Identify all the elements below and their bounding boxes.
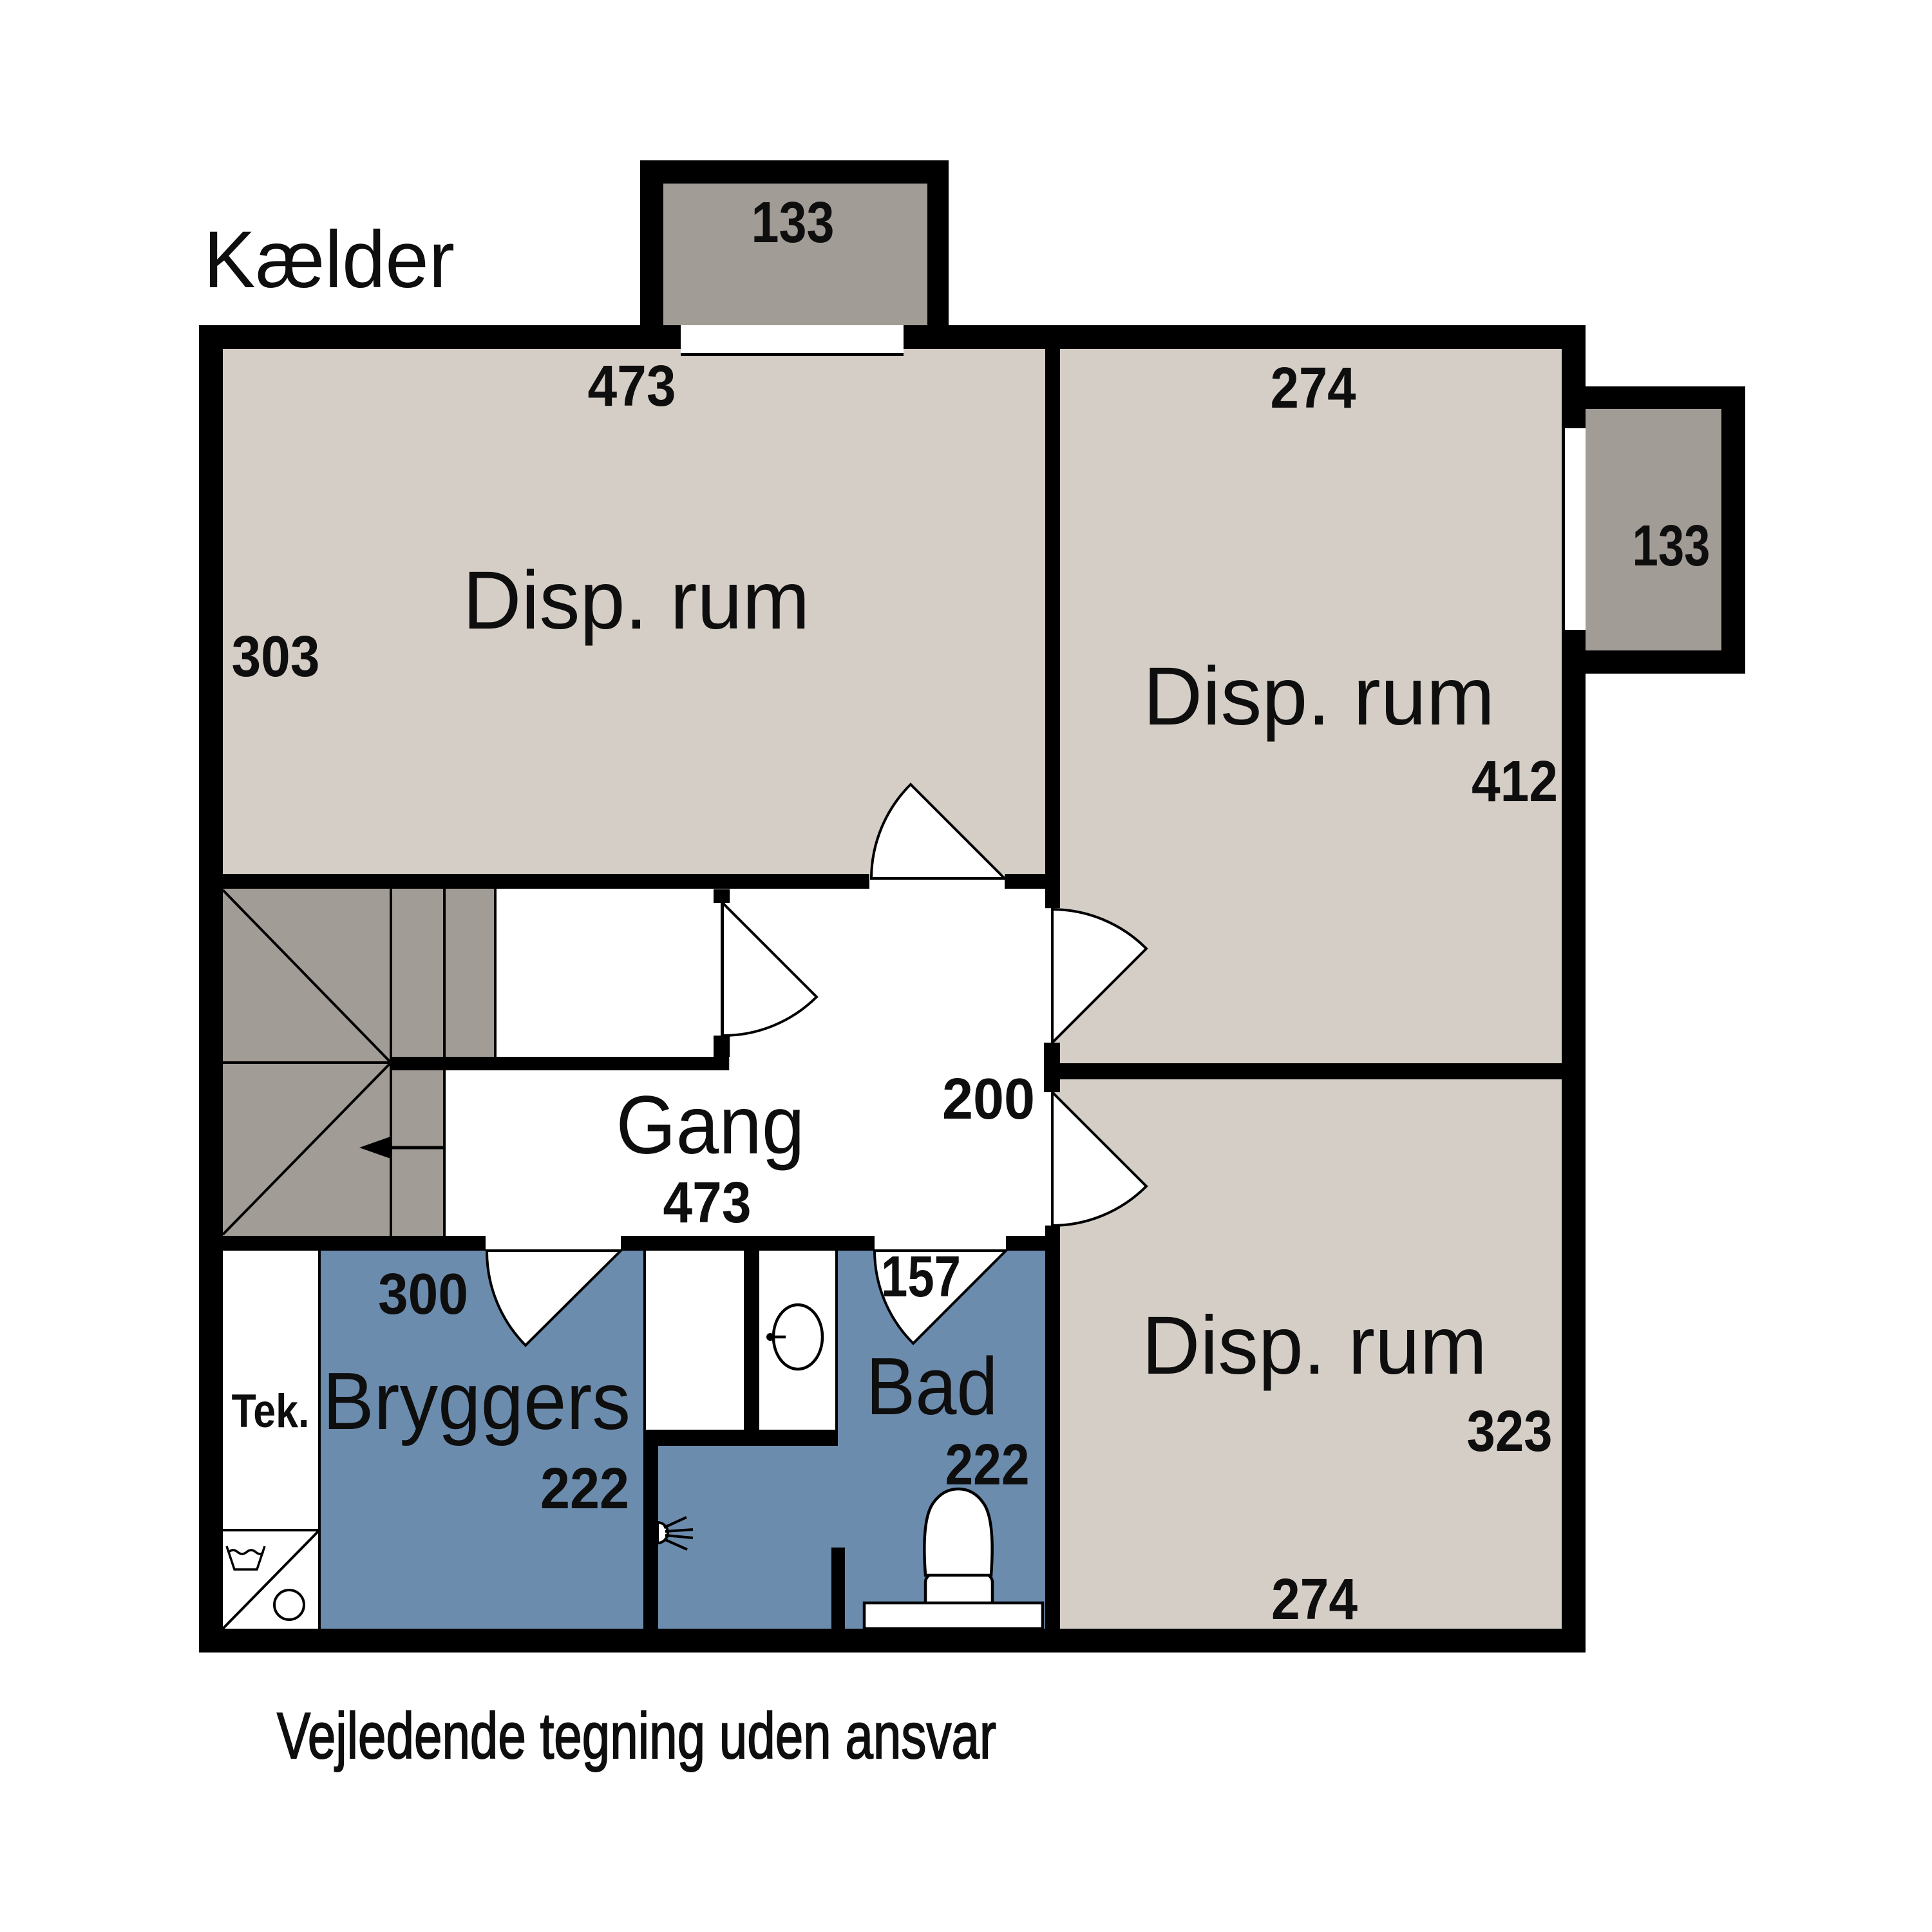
svg-text:200: 200 <box>942 1067 1035 1132</box>
svg-text:Disp. rum: Disp. rum <box>463 554 810 647</box>
svg-text:Vejledende tegning uden ansvar: Vejledende tegning uden ansvar <box>277 1700 996 1772</box>
svg-text:222: 222 <box>540 1457 629 1521</box>
svg-text:133: 133 <box>752 191 835 255</box>
svg-text:Tek.: Tek. <box>232 1385 310 1437</box>
svg-text:323: 323 <box>1467 1399 1553 1464</box>
svg-text:274: 274 <box>1271 356 1356 421</box>
svg-text:Bad: Bad <box>866 1341 998 1432</box>
svg-text:473: 473 <box>588 354 676 419</box>
svg-text:303: 303 <box>232 625 320 689</box>
svg-text:Bryggers: Bryggers <box>323 1356 630 1446</box>
svg-text:133: 133 <box>1633 514 1710 578</box>
svg-text:412: 412 <box>1472 750 1558 814</box>
svg-text:Disp. rum: Disp. rum <box>1143 650 1495 743</box>
svg-text:Kælder: Kælder <box>204 215 455 305</box>
svg-text:300: 300 <box>378 1262 468 1327</box>
svg-text:Gang: Gang <box>616 1079 805 1171</box>
svg-text:222: 222 <box>945 1433 1030 1497</box>
svg-text:Disp. rum: Disp. rum <box>1142 1300 1487 1392</box>
svg-text:473: 473 <box>663 1171 752 1235</box>
svg-text:274: 274 <box>1271 1567 1358 1632</box>
svg-text:157: 157 <box>881 1245 961 1309</box>
